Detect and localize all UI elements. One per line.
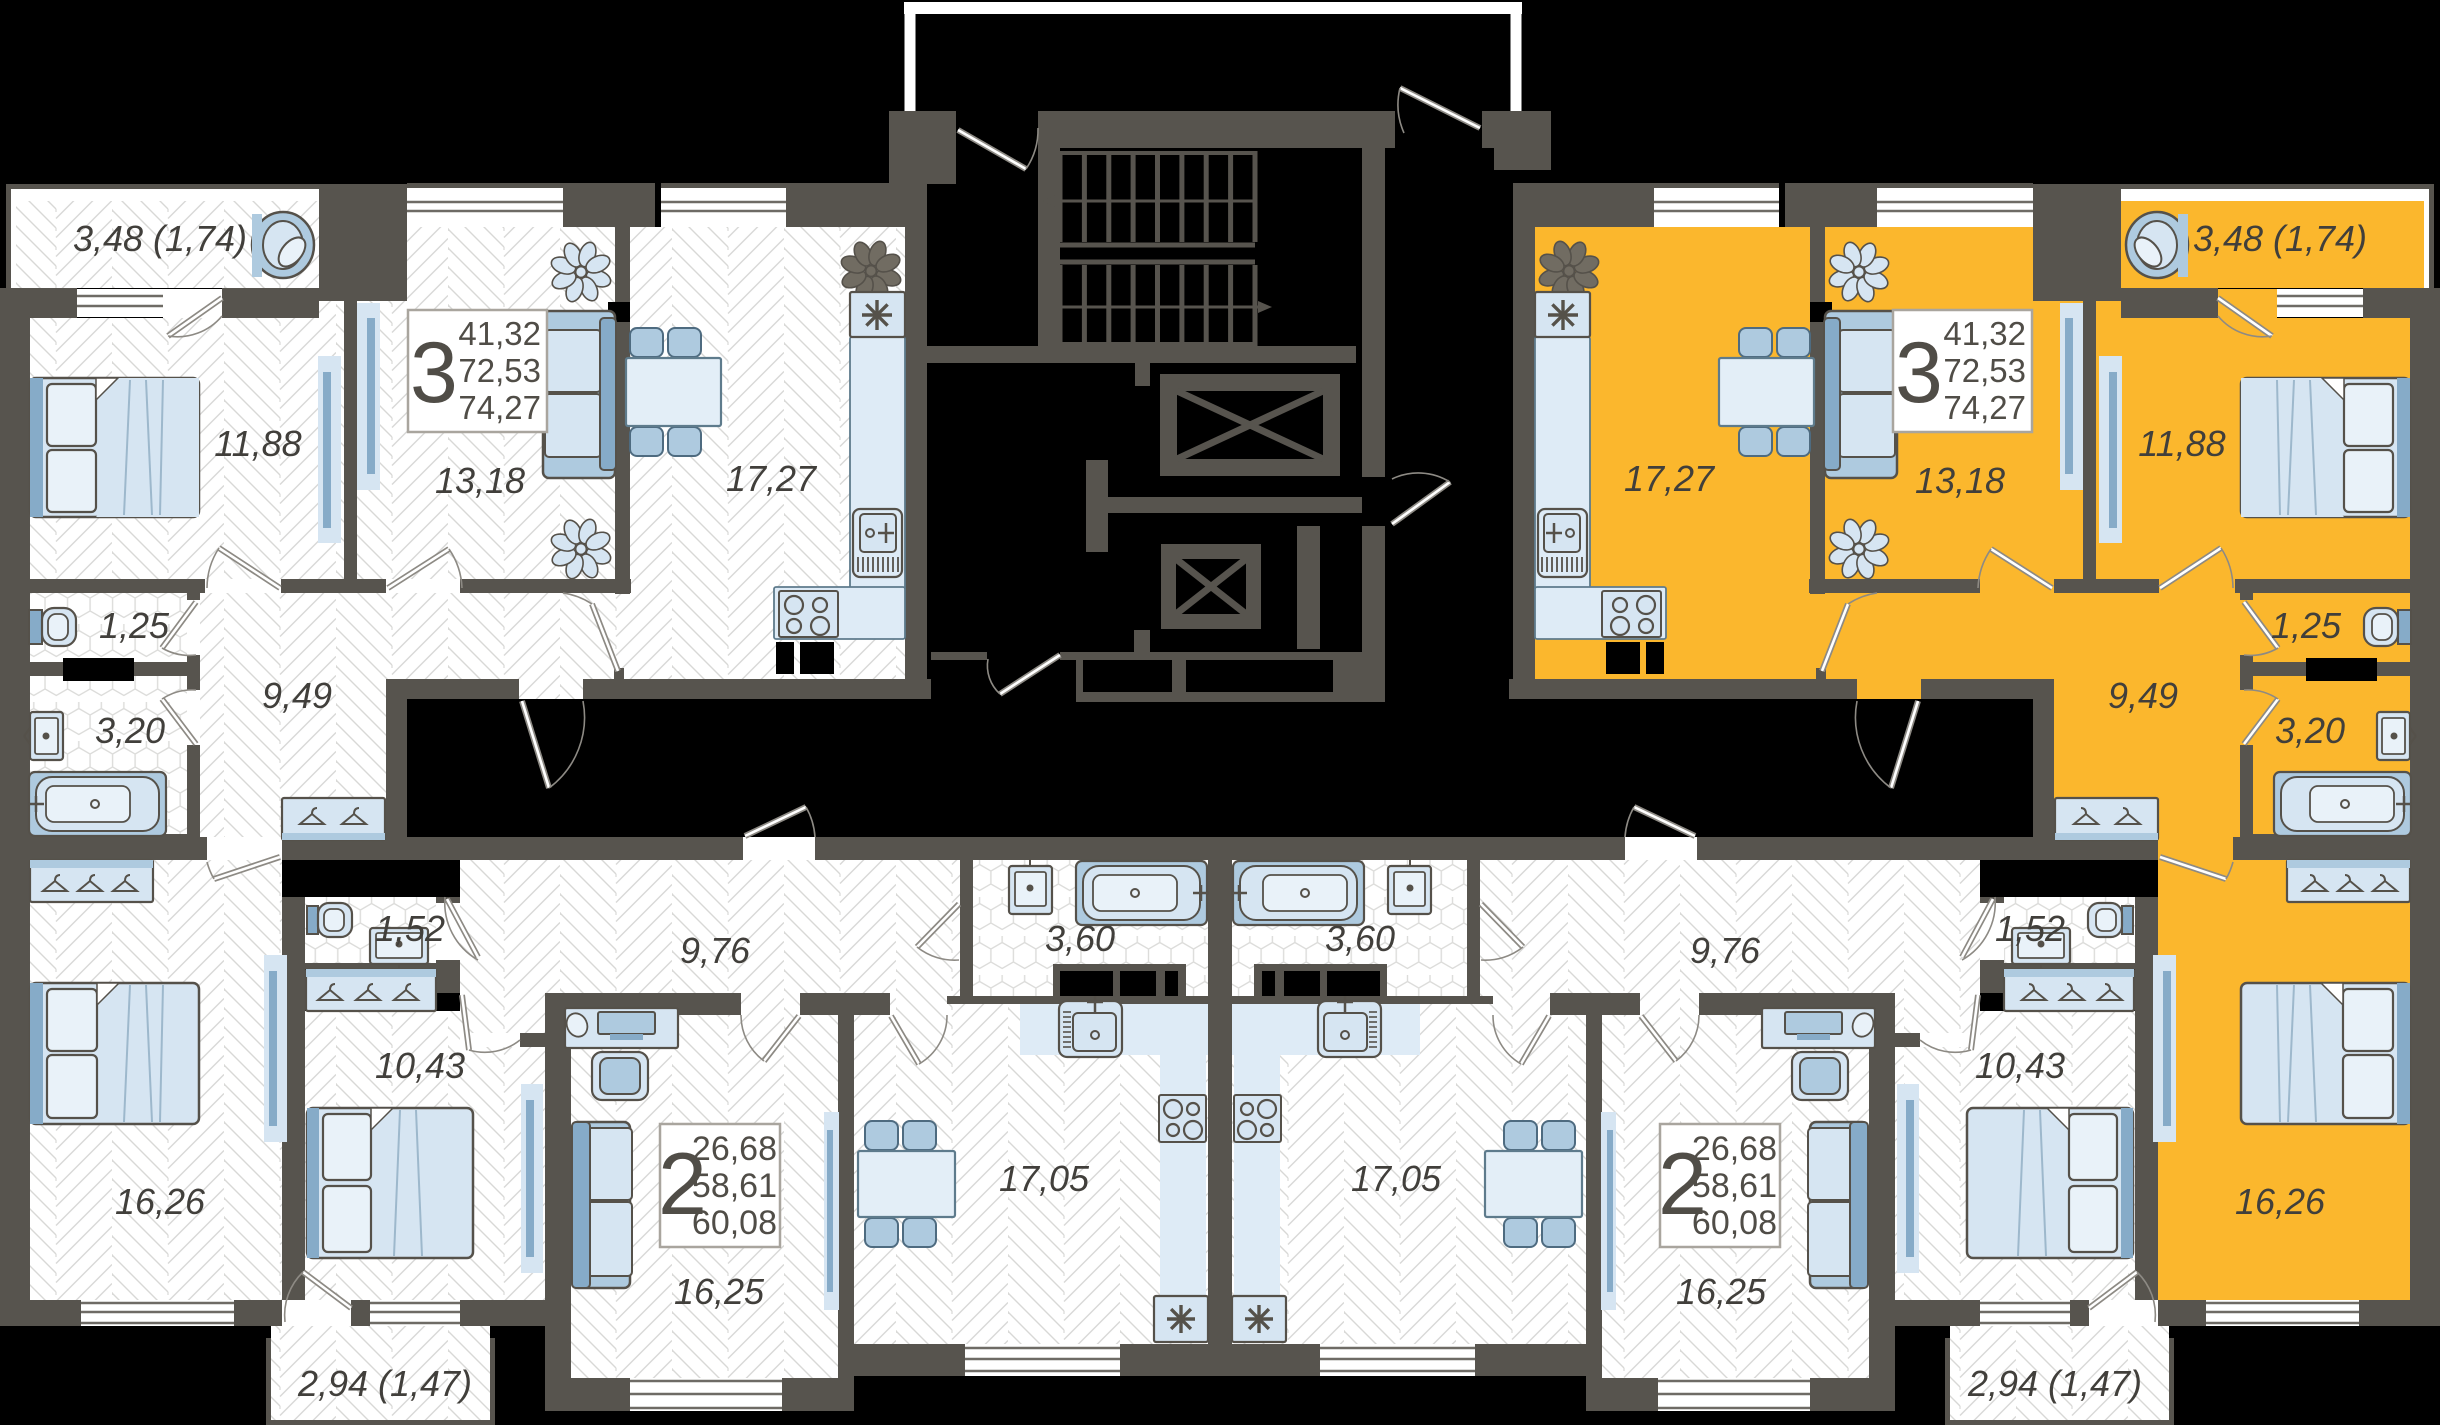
svg-text:10,43: 10,43 <box>375 1045 465 1086</box>
svg-text:13,18: 13,18 <box>435 460 525 501</box>
svg-text:41,32: 41,32 <box>1943 315 2026 352</box>
svg-text:3: 3 <box>1895 325 1943 421</box>
svg-text:41,32: 41,32 <box>458 315 541 352</box>
svg-text:3,60: 3,60 <box>1325 918 1395 959</box>
svg-text:72,53: 72,53 <box>1943 352 2026 389</box>
svg-text:26,68: 26,68 <box>692 1130 777 1168</box>
svg-text:16,25: 16,25 <box>1676 1271 1767 1312</box>
svg-text:9,76: 9,76 <box>680 930 751 971</box>
svg-text:58,61: 58,61 <box>1692 1167 1777 1205</box>
svg-text:1,25: 1,25 <box>2271 605 2342 646</box>
svg-text:26,68: 26,68 <box>1692 1130 1777 1168</box>
svg-text:2,94 (1,47): 2,94 (1,47) <box>1967 1363 2142 1404</box>
svg-text:1,52: 1,52 <box>375 908 445 949</box>
svg-text:16,26: 16,26 <box>115 1181 206 1222</box>
svg-text:13,18: 13,18 <box>1915 460 2005 501</box>
svg-text:17,27: 17,27 <box>1624 458 1716 499</box>
svg-text:16,25: 16,25 <box>674 1271 765 1312</box>
svg-text:9,49: 9,49 <box>2108 675 2178 716</box>
svg-text:74,27: 74,27 <box>458 389 541 426</box>
svg-text:60,08: 60,08 <box>692 1204 777 1242</box>
svg-text:11,88: 11,88 <box>214 423 301 464</box>
svg-text:58,61: 58,61 <box>692 1167 777 1205</box>
svg-text:3,48 (1,74): 3,48 (1,74) <box>73 218 247 259</box>
svg-text:9,76: 9,76 <box>1690 930 1761 971</box>
svg-text:16,26: 16,26 <box>2235 1181 2326 1222</box>
svg-text:3: 3 <box>410 325 458 421</box>
svg-text:72,53: 72,53 <box>458 352 541 389</box>
svg-text:2,94 (1,47): 2,94 (1,47) <box>297 1363 472 1404</box>
svg-text:10,43: 10,43 <box>1975 1045 2065 1086</box>
svg-text:17,05: 17,05 <box>999 1158 1090 1199</box>
svg-text:3,60: 3,60 <box>1045 918 1115 959</box>
svg-text:9,49: 9,49 <box>262 675 332 716</box>
svg-text:11,88: 11,88 <box>2138 423 2225 464</box>
svg-text:74,27: 74,27 <box>1943 389 2026 426</box>
svg-text:17,27: 17,27 <box>726 458 818 499</box>
svg-text:17,05: 17,05 <box>1351 1158 1442 1199</box>
svg-text:1,52: 1,52 <box>1995 908 2065 949</box>
svg-text:3,20: 3,20 <box>95 710 165 751</box>
svg-text:3,20: 3,20 <box>2275 710 2345 751</box>
svg-text:3,48 (1,74): 3,48 (1,74) <box>2193 218 2367 259</box>
svg-text:60,08: 60,08 <box>1692 1204 1777 1242</box>
svg-text:1,25: 1,25 <box>99 605 170 646</box>
